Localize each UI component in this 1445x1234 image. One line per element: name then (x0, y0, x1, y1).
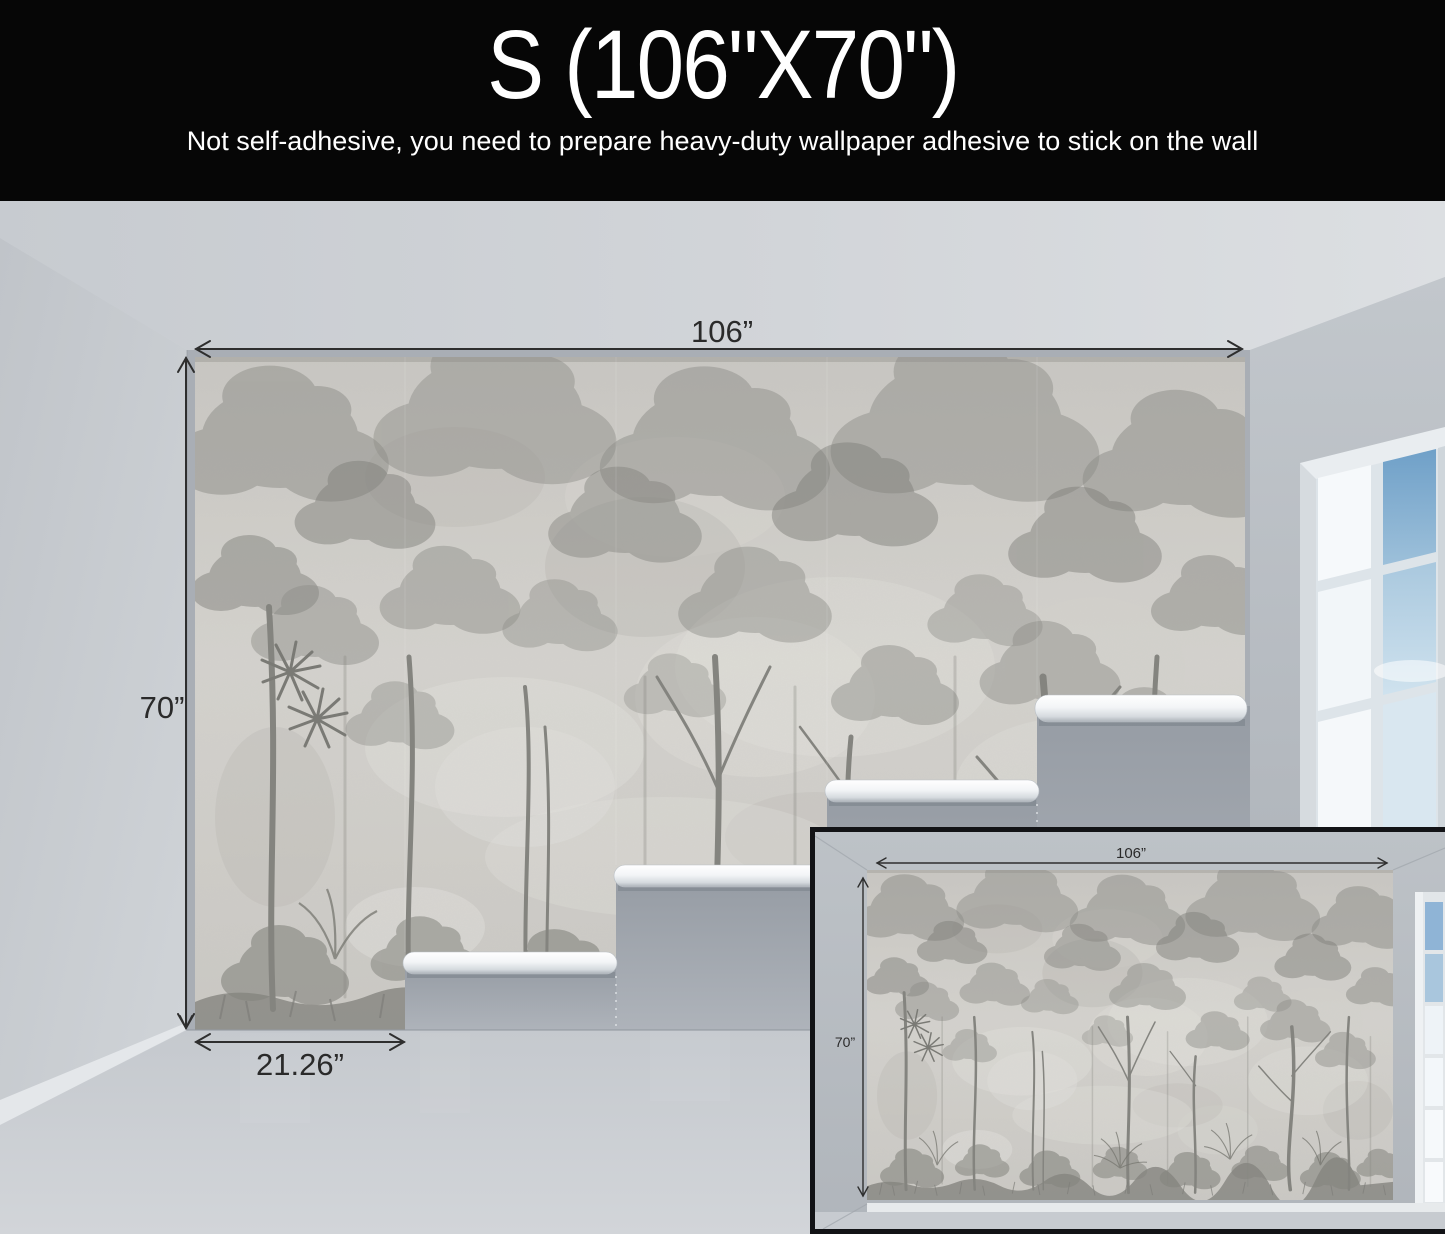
inset-mural (855, 858, 1414, 1206)
inset-floor (815, 1212, 1445, 1229)
wallpaper-roll-2 (614, 865, 828, 887)
product-size-title: S (106"X70") (487, 16, 958, 113)
inset-height-label: 70” (835, 1034, 856, 1050)
room-scene-svg: 106” 70” 21.26” (0, 201, 1445, 1234)
room-scene: 106” 70” 21.26” (0, 201, 1445, 1234)
adhesive-note: Not self-adhesive, you need to prepare h… (187, 126, 1259, 157)
header-band: S (106"X70") Not self-adhesive, you need… (0, 0, 1445, 201)
wallpaper-roll-1 (403, 952, 617, 974)
inset-baseboard (867, 1203, 1445, 1212)
wallpaper-roll-3 (825, 780, 1039, 802)
wallpaper-roll-4 (1035, 695, 1247, 722)
product-infographic: S (106"X70") Not self-adhesive, you need… (0, 0, 1445, 1234)
mural-top-shadow (195, 357, 1245, 362)
inset-window (1415, 892, 1445, 1217)
left-wall (0, 238, 187, 1125)
window-pane (1318, 465, 1371, 581)
width-dimension-label: 106” (691, 314, 753, 349)
inset-width-label: 106” (1116, 845, 1146, 862)
inset-room: 106” 70” (815, 832, 1445, 1229)
inset-preview: 106” 70” (810, 827, 1445, 1234)
panel-width-dimension-label: 21.26” (256, 1047, 344, 1082)
window-pane (1318, 579, 1371, 711)
window-pane-sky (1383, 449, 1436, 565)
height-dimension-label: 70” (140, 690, 185, 725)
